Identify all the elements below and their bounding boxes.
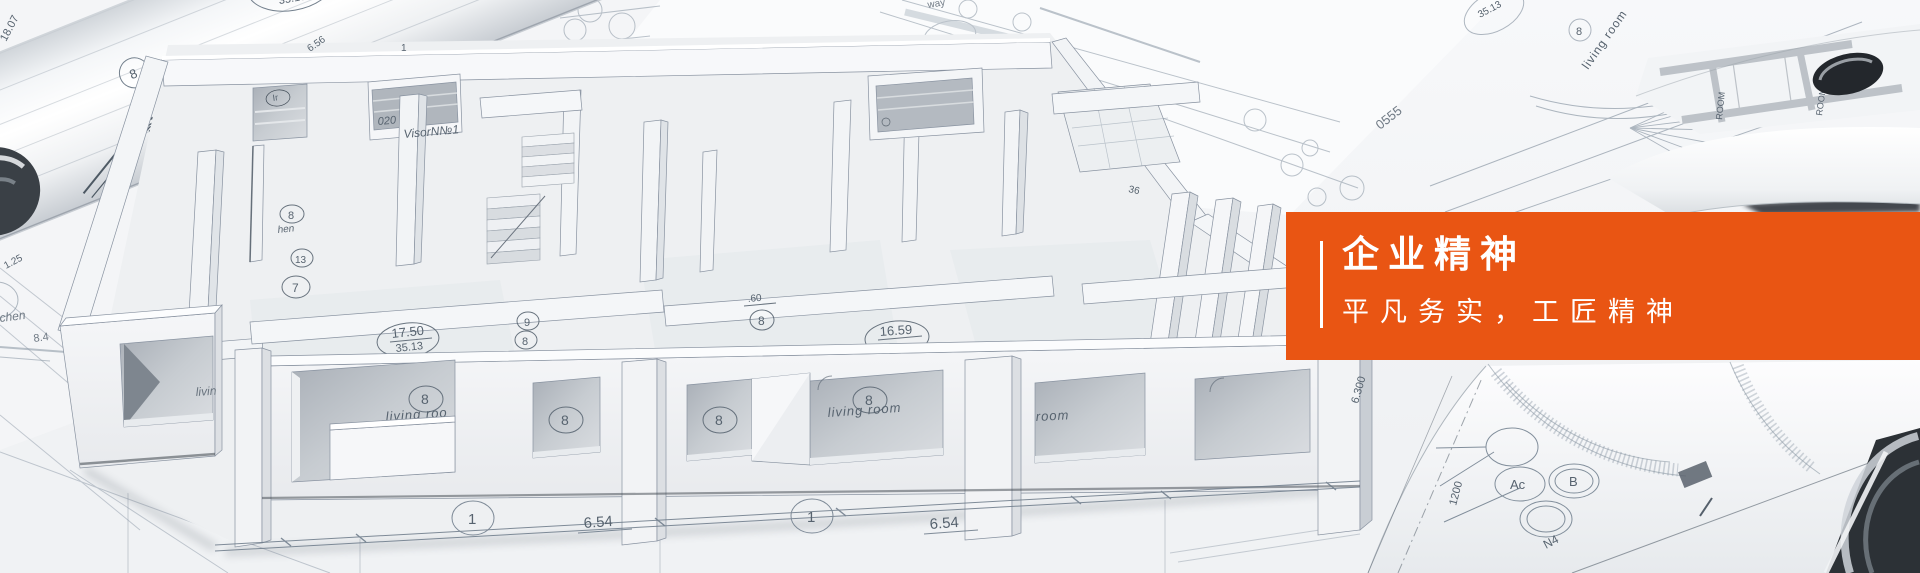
- badge-b: B: [1569, 474, 1578, 489]
- dim-654-a: 6.54: [583, 513, 613, 532]
- banner-subtitle: 平凡务实，工匠精神: [1342, 295, 1684, 329]
- badge-8-b: 8: [522, 336, 528, 348]
- badge-8-c: 8: [758, 314, 765, 328]
- badge-1-dim-b: 1: [807, 509, 815, 526]
- badge-7: 7: [292, 281, 299, 295]
- badge-8-w2: 8: [421, 391, 429, 407]
- badge-1-dim-a: 1: [468, 511, 476, 528]
- badge-ac: Ac: [1510, 477, 1526, 492]
- badge-13: 13: [295, 255, 307, 266]
- slogan-banner: 企业精神 平凡务实，工匠精神: [1286, 212, 1920, 360]
- sheet-badge-8: 8: [1576, 26, 1582, 38]
- badge-8-a: 8: [288, 210, 294, 222]
- label-dot60: .60: [747, 293, 762, 305]
- badge-9: 9: [524, 317, 530, 329]
- banner-accent-bar: [1320, 241, 1323, 328]
- label-livin: livin: [195, 384, 217, 399]
- dim-654-b: 6.54: [929, 514, 959, 533]
- label-room-w6: room: [1035, 407, 1069, 424]
- banner-title: 企业精神: [1342, 234, 1526, 276]
- label-hen: hen: [277, 223, 295, 236]
- label-8-4: 8.4: [33, 331, 50, 345]
- badge-1-bg: 1: [401, 43, 407, 54]
- badge-8-w3: 8: [561, 412, 569, 428]
- area2-top: 16.59: [879, 322, 913, 339]
- hero-banner: way 0555 chen 8.4 18.07 17.50 1.25 6 liv…: [0, 0, 1920, 573]
- badge-8-w4: 8: [715, 412, 723, 428]
- label-020: 020: [377, 114, 397, 128]
